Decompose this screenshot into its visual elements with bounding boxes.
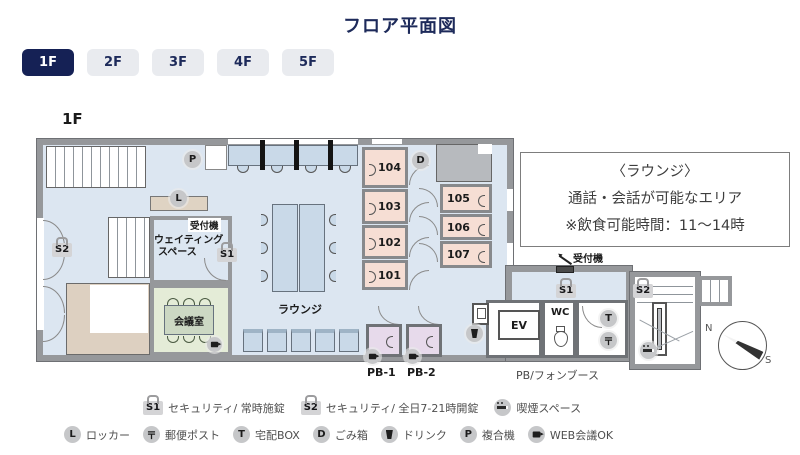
drink-icon (466, 325, 483, 342)
legend-trash: D ごみ箱 (313, 426, 368, 443)
room-103-number: 103 (378, 200, 401, 213)
left-stairs (108, 217, 150, 278)
trash-icon: D (412, 152, 429, 169)
tab-5f[interactable]: 5F (282, 49, 334, 76)
window-gap-104 (372, 139, 402, 144)
web-meeting-camera-icon-meeting-room (207, 337, 222, 352)
ev-label: EV (511, 319, 527, 332)
room-107: 107 (440, 241, 492, 268)
legend-delivery-label: 宅配BOX (255, 427, 300, 443)
lounge-table-left (272, 204, 298, 292)
room-105: 105 (440, 184, 492, 213)
bench-seat-4 (315, 329, 335, 352)
reception-arrow (559, 255, 572, 265)
pb1-label: PB-1 (367, 366, 396, 379)
legend-locker-label: ロッカー (86, 427, 130, 443)
room-104: 104 (362, 147, 408, 188)
trash-legend-icon: D (313, 426, 330, 443)
camera-glyph (211, 342, 218, 348)
mail-room (576, 300, 628, 358)
cup-glyph (471, 329, 478, 338)
legend-s2-label: セキュリティ/ 全日7-21時開錠 (326, 400, 479, 416)
phone-booth-label: PB/フォンブース (516, 367, 599, 383)
post-legend-icon: 〒 (143, 426, 160, 443)
entrance-hall-inner (90, 285, 148, 333)
bench-seat-3 (291, 329, 311, 352)
floor-tabs: 1F 2F 3F 4F 5F (22, 49, 334, 76)
legend-locker: L ロッカー (64, 426, 130, 443)
legend-trash-label: ごみ箱 (335, 427, 368, 443)
window-gap-107 (507, 243, 513, 265)
page-title: フロア平面図 (0, 12, 800, 38)
legend-s1: S1 セキュリティ/ 常時施錠 (143, 400, 285, 416)
elevator-room: EV (486, 300, 542, 358)
legend-printer-label: 複合機 (482, 427, 515, 443)
mail-room-door-arc (582, 306, 602, 328)
tab-2f[interactable]: 2F (87, 49, 139, 76)
locker-legend-icon: L (64, 426, 81, 443)
legend-printer: P 複合機 (460, 426, 515, 443)
legend-smoking-label: 喫煙スペース (516, 400, 581, 416)
compass-needle (720, 331, 763, 360)
reception-machine-device (556, 266, 574, 273)
wc-room: WC (542, 300, 576, 358)
printer-legend-icon: P (460, 426, 477, 443)
tab-4f[interactable]: 4F (217, 49, 269, 76)
legend-drink: ドリンク (381, 426, 447, 443)
legend-delivery: T 宅配BOX (233, 426, 300, 443)
legend-s2-badge: S2 (301, 401, 321, 415)
lounge-label: ラウンジ (278, 301, 322, 317)
compass (718, 321, 767, 370)
counter-divider-2 (294, 140, 299, 170)
legend-drink-label: ドリンク (403, 427, 447, 443)
room-107-number: 107 (447, 248, 470, 261)
post-icon: 〒 (600, 332, 617, 349)
security-badge-s2-left: S2 (52, 243, 72, 257)
legend-post-label: 郵便ポスト (165, 427, 220, 443)
legend-s2: S2 セキュリティ/ 全日7-21時開錠 (301, 400, 479, 416)
reception-machine-label-right: 受付機 (573, 250, 603, 265)
compass-south-label: S (765, 355, 771, 366)
info-line-2: 通話・会話が可能なエリア (568, 186, 742, 213)
cigarette-glyph (643, 349, 654, 352)
compass-north-label: N (705, 323, 712, 334)
bench-seat-1 (243, 329, 263, 352)
drink-legend-icon (381, 426, 398, 443)
security-badge-s1-right: S1 (556, 284, 576, 298)
security-badge-s2-right: S2 (633, 284, 653, 298)
web-meeting-camera-icon-pb2 (405, 349, 420, 364)
room-106-number: 106 (447, 221, 470, 234)
bench-seat-5 (339, 329, 359, 352)
toilet-icon (554, 331, 568, 347)
page: フロア平面図 1F 2F 3F 4F 5F 1F S2 P L 受付機 ウェイテ… (0, 0, 800, 455)
wc-label: WC (551, 307, 569, 318)
wall-nook (205, 145, 227, 170)
meeting-table: 会議室 (164, 305, 214, 335)
floor-plan-label: 1F (62, 110, 83, 128)
room-102: 102 (362, 225, 408, 259)
right-stairs-upper-run (698, 276, 732, 306)
pb2-label: PB-2 (407, 366, 436, 379)
room-102-number: 102 (378, 236, 401, 249)
meeting-room-label: 会議室 (174, 313, 204, 328)
reception-machine-label-left: 受付機 (188, 218, 221, 232)
legend-row-1: S1 セキュリティ/ 常時施錠 S2 セキュリティ/ 全日7-21時開錠 喫煙ス… (143, 399, 597, 416)
drink-station (472, 303, 489, 325)
lounge-table-right (299, 204, 325, 292)
top-left-stairs (46, 146, 146, 188)
legend-s1-badge: S1 (143, 401, 163, 415)
web-meeting-camera-icon-pb1 (365, 349, 380, 364)
utility-box-notch (478, 144, 492, 154)
delivery-box-icon: T (600, 310, 617, 327)
camera-legend-icon (528, 426, 545, 443)
smoking-area-icon (640, 342, 657, 359)
legend-row-2: L ロッカー 〒 郵便ポスト T 宅配BOX D ごみ箱 ドリンク P 複合機 … (64, 426, 613, 443)
delivery-legend-icon: T (233, 426, 250, 443)
elevator-cab: EV (498, 310, 540, 340)
counter-table (228, 145, 358, 166)
waiting-space-label-2: スペース (158, 243, 197, 258)
smoking-icon (494, 399, 511, 416)
locker-icon: L (170, 190, 187, 207)
window-gap-105 (507, 189, 513, 211)
legend-post: 〒 郵便ポスト (143, 426, 220, 443)
room-104-number: 104 (378, 161, 401, 174)
info-line-1: 〈ラウンジ〉 (612, 159, 699, 186)
info-line-3: ※飲食可能時間：11〜14時 (565, 213, 745, 240)
window-gap-counter (228, 139, 358, 144)
room-103: 103 (362, 189, 408, 224)
legend-s1-label: セキュリティ/ 常時施錠 (168, 400, 285, 416)
printer-icon: P (184, 151, 201, 168)
tab-3f[interactable]: 3F (152, 49, 204, 76)
room-105-number: 105 (447, 192, 470, 205)
counter-divider-3 (328, 140, 333, 170)
room-106: 106 (440, 214, 492, 240)
room-101-number: 101 (378, 269, 401, 282)
bench-seat-2 (267, 329, 287, 352)
legend-smoking: 喫煙スペース (494, 399, 581, 416)
room-101: 101 (362, 260, 408, 290)
legend-webmeeting-label: WEB会議OK (550, 427, 613, 443)
tab-1f[interactable]: 1F (22, 49, 74, 76)
legend-webmeeting: WEB会議OK (528, 426, 613, 443)
lounge-info-box: 〈ラウンジ〉 通話・会話が可能なエリア ※飲食可能時間：11〜14時 (520, 152, 790, 247)
counter-divider-1 (260, 140, 265, 170)
